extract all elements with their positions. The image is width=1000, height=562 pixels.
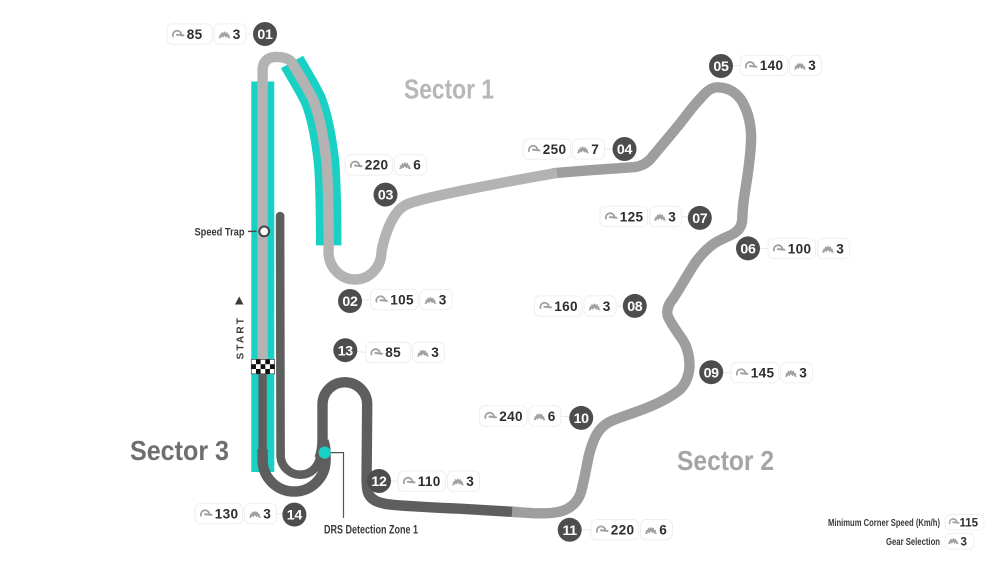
svg-text:3: 3: [263, 506, 271, 521]
svg-text:03: 03: [378, 188, 394, 204]
svg-text:160: 160: [554, 299, 578, 314]
svg-text:3: 3: [961, 536, 967, 548]
svg-text:12: 12: [371, 474, 387, 490]
svg-text:START: START: [236, 316, 247, 360]
svg-text:Minimum Corner Speed (Km/h): Minimum Corner Speed (Km/h): [828, 518, 940, 529]
svg-text:13: 13: [338, 343, 354, 359]
svg-text:04: 04: [617, 142, 633, 158]
svg-text:3: 3: [836, 241, 844, 256]
svg-text:3: 3: [439, 292, 447, 307]
svg-text:250: 250: [543, 142, 567, 157]
svg-text:14: 14: [287, 508, 303, 524]
svg-text:01: 01: [257, 27, 273, 43]
svg-text:08: 08: [627, 299, 643, 315]
svg-text:3: 3: [431, 345, 439, 360]
svg-text:10: 10: [574, 411, 590, 427]
svg-text:125: 125: [620, 209, 644, 224]
svg-text:3: 3: [799, 365, 807, 380]
svg-text:145: 145: [751, 365, 775, 380]
svg-text:115: 115: [960, 517, 979, 529]
svg-text:6: 6: [413, 158, 421, 173]
svg-text:Sector 2: Sector 2: [677, 445, 774, 476]
svg-text:Sector 3: Sector 3: [130, 435, 229, 466]
svg-text:3: 3: [668, 209, 676, 224]
svg-text:3: 3: [466, 474, 474, 489]
svg-text:Speed Trap: Speed Trap: [195, 226, 245, 238]
svg-text:Gear Selection: Gear Selection: [886, 537, 940, 548]
svg-text:07: 07: [692, 211, 708, 227]
svg-text:02: 02: [342, 294, 358, 310]
svg-text:6: 6: [659, 523, 667, 538]
svg-text:240: 240: [499, 409, 523, 424]
svg-text:220: 220: [611, 523, 635, 538]
svg-text:DRS Detection Zone 1: DRS Detection Zone 1: [324, 525, 418, 537]
svg-text:3: 3: [808, 58, 816, 73]
svg-text:110: 110: [418, 474, 441, 489]
svg-text:6: 6: [548, 409, 556, 424]
svg-text:7: 7: [591, 142, 599, 157]
svg-text:05: 05: [713, 59, 729, 75]
svg-text:220: 220: [365, 158, 389, 173]
svg-text:100: 100: [788, 241, 812, 256]
svg-text:105: 105: [390, 292, 414, 307]
svg-text:11: 11: [562, 523, 577, 539]
svg-text:3: 3: [603, 299, 611, 314]
svg-text:Sector 1: Sector 1: [404, 74, 494, 105]
svg-text:09: 09: [704, 365, 720, 381]
svg-text:85: 85: [385, 345, 401, 360]
svg-text:85: 85: [187, 27, 203, 42]
svg-text:06: 06: [740, 242, 756, 258]
svg-text:130: 130: [215, 506, 239, 521]
svg-text:3: 3: [233, 27, 241, 42]
svg-text:140: 140: [760, 58, 784, 73]
